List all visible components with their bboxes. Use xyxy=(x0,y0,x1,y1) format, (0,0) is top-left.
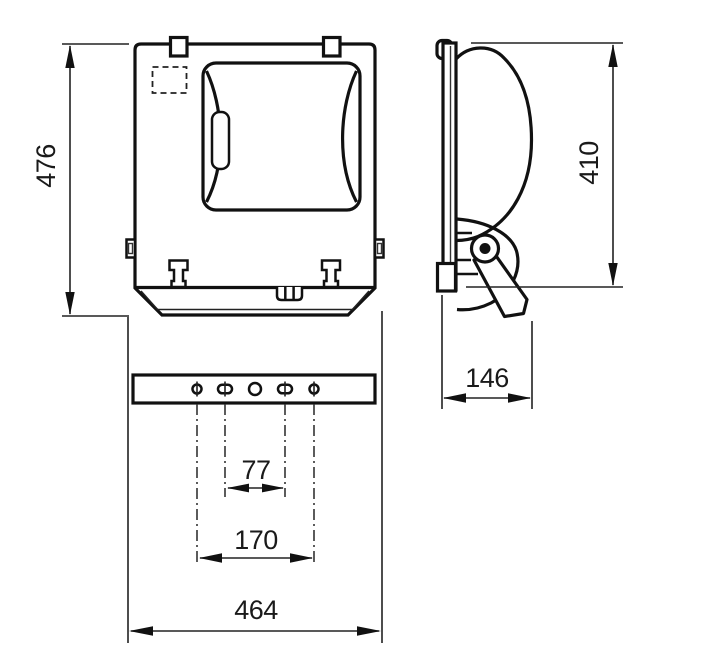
dim-label-side-height: 410 xyxy=(574,141,604,185)
dimension-slot-spacing: 77 xyxy=(227,455,284,492)
arrowhead-up xyxy=(65,45,74,68)
floodlight-dimension-drawing: 476 410 146 77 170 xyxy=(0,0,707,652)
side-view xyxy=(437,41,532,317)
reflector-dome xyxy=(456,48,532,241)
arrowhead-right xyxy=(508,393,531,402)
hinge-tab-right xyxy=(375,240,384,258)
dim-label-overall-width: 464 xyxy=(234,595,278,625)
side-frame xyxy=(443,43,456,290)
arrowhead-left xyxy=(199,553,222,562)
hinge-tab-left xyxy=(127,240,136,258)
dimension-front-height: 476 xyxy=(31,44,129,316)
dim-label-slot-spacing: 77 xyxy=(241,455,270,485)
arrowhead-up xyxy=(608,44,617,67)
top-clip-right xyxy=(324,38,341,57)
top-clip-left xyxy=(171,38,188,57)
drawing-svg: 476 410 146 77 170 xyxy=(0,0,707,652)
side-foot xyxy=(438,264,456,292)
front-view xyxy=(127,38,384,316)
arrowhead-right xyxy=(357,626,381,636)
cable-gland xyxy=(277,287,302,300)
dimension-hole-spacing: 170 xyxy=(199,525,313,563)
dim-label-front-height: 476 xyxy=(31,144,61,188)
lamp-opening xyxy=(212,112,229,169)
dim-label-hole-spacing: 170 xyxy=(234,525,278,555)
arrowhead-left xyxy=(129,626,153,636)
arrowhead-down xyxy=(608,263,617,286)
arrowhead-left xyxy=(443,393,466,402)
arrowhead-right xyxy=(290,553,313,562)
dim-label-side-depth: 146 xyxy=(465,363,509,393)
mounting-bracket xyxy=(133,375,375,403)
pivot-bolt-dot xyxy=(480,243,491,254)
arrowhead-down xyxy=(65,292,74,315)
